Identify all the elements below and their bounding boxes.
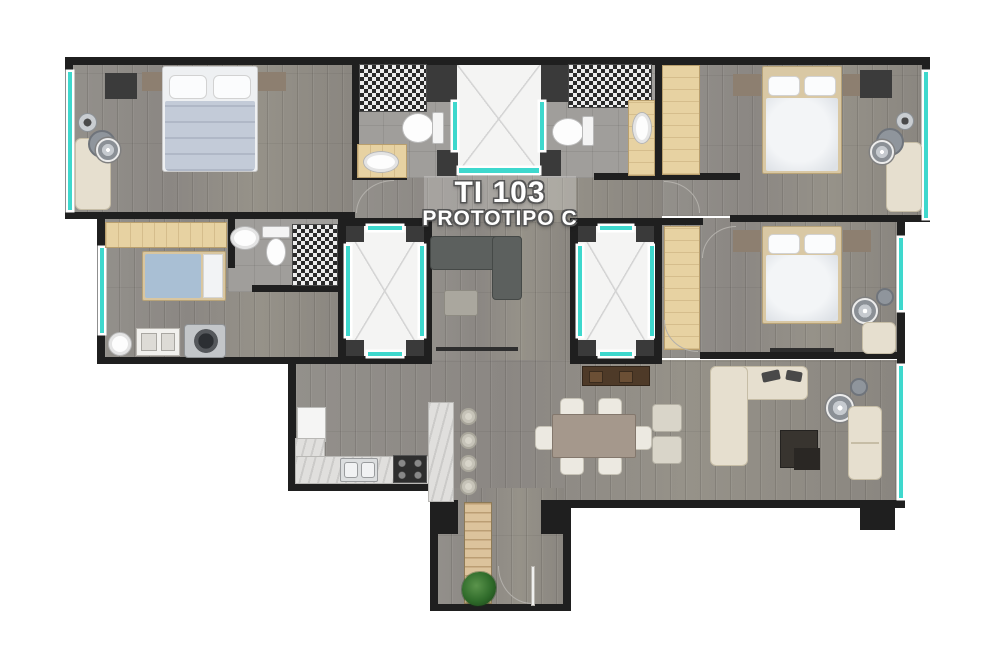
shower-mosaic bbox=[359, 64, 427, 112]
toilet-tank bbox=[432, 112, 444, 144]
double-bed bbox=[162, 66, 258, 172]
prototype-subtitle: PROTOTIPO C bbox=[400, 207, 600, 231]
floor-lamp-icon bbox=[96, 138, 120, 162]
washer-lid bbox=[194, 329, 218, 353]
pillow bbox=[768, 76, 800, 96]
toilet-icon bbox=[552, 118, 584, 146]
window-small-bedroom bbox=[100, 248, 104, 333]
toilet-tank bbox=[582, 116, 594, 146]
window-living bbox=[899, 366, 903, 498]
headboard-panel bbox=[733, 230, 761, 252]
sink-bowl bbox=[161, 333, 175, 351]
tv-console bbox=[436, 347, 518, 351]
patio-2-window bbox=[578, 246, 582, 336]
dining-chair bbox=[560, 455, 584, 475]
window-master-right bbox=[924, 72, 928, 218]
patio-1-window bbox=[346, 246, 350, 336]
sink-icon bbox=[632, 112, 652, 144]
pouf bbox=[652, 404, 682, 432]
armchair bbox=[862, 322, 896, 354]
wardrobe bbox=[105, 222, 227, 248]
tv-console bbox=[770, 348, 834, 352]
patio-2-corner bbox=[636, 226, 654, 242]
sink-icon bbox=[363, 151, 399, 173]
window-bedroom2 bbox=[899, 238, 903, 310]
wall-kitchen-bottom bbox=[288, 483, 438, 491]
coffee-table-tier bbox=[794, 448, 820, 470]
plant-pot-icon bbox=[896, 112, 914, 130]
pillow bbox=[804, 76, 836, 96]
wall-bath3-bottom bbox=[252, 285, 342, 292]
headboard-panel bbox=[256, 72, 286, 91]
patio-2-corner bbox=[636, 340, 654, 356]
shaft-corner-block bbox=[427, 64, 457, 102]
pillow bbox=[804, 234, 836, 254]
entry-door-leaf bbox=[531, 566, 535, 606]
shaft-corner-block bbox=[540, 150, 561, 176]
headboard-panel bbox=[843, 230, 871, 252]
nightstand bbox=[860, 70, 892, 98]
sectional-sofa-chaise bbox=[492, 236, 522, 300]
wall-bottom-right bbox=[563, 500, 905, 508]
column-stub-left bbox=[430, 500, 458, 534]
patio-2 bbox=[578, 226, 654, 356]
wall-bath2-right bbox=[655, 57, 662, 180]
dining-chair bbox=[598, 455, 622, 475]
patio-1-corner bbox=[406, 340, 424, 356]
bar-stool bbox=[460, 478, 477, 495]
utility-sink bbox=[136, 328, 180, 356]
floor-plan: TI 103 PROTOTIPO C bbox=[0, 0, 1000, 667]
shaft-corner-block bbox=[437, 150, 458, 176]
bar-stool bbox=[460, 408, 477, 425]
drawer bbox=[589, 371, 603, 383]
wall-top bbox=[65, 57, 930, 65]
pillow bbox=[768, 234, 800, 254]
stove-icon bbox=[393, 455, 427, 483]
wall-bedroom2-top bbox=[648, 218, 703, 225]
drawer bbox=[619, 371, 633, 383]
plant-pot-icon bbox=[78, 113, 97, 132]
shaft-window bbox=[459, 168, 539, 173]
double-bed bbox=[762, 226, 842, 324]
round-side-table bbox=[876, 288, 894, 306]
cushion-divider bbox=[851, 442, 879, 444]
outside-mask bbox=[292, 491, 430, 505]
bar-stool bbox=[460, 455, 477, 472]
patio-1-corner bbox=[346, 340, 364, 356]
loveseat bbox=[848, 406, 882, 480]
laundry-basin-icon bbox=[108, 332, 132, 356]
dining-table bbox=[552, 414, 636, 458]
patio-2-window bbox=[600, 352, 632, 356]
duvet bbox=[165, 101, 255, 171]
tv-panel bbox=[105, 73, 137, 99]
l-sofa-chaise bbox=[710, 366, 748, 466]
pillow bbox=[169, 75, 207, 99]
patio-1-window bbox=[420, 246, 424, 336]
window-master-left bbox=[68, 72, 72, 210]
single-bed bbox=[142, 251, 226, 301]
patio-2-window bbox=[650, 246, 654, 336]
ottoman bbox=[444, 290, 478, 316]
pillow bbox=[213, 75, 251, 99]
column-bottom-right bbox=[860, 500, 895, 530]
sink-icon bbox=[230, 226, 260, 250]
kitchen-island bbox=[428, 402, 454, 502]
headboard-panel bbox=[733, 74, 761, 96]
shower-mosaic bbox=[292, 224, 338, 286]
washing-machine-icon bbox=[184, 324, 226, 358]
double-bed bbox=[762, 66, 842, 174]
shaft-window bbox=[540, 102, 544, 150]
floor-lamp-icon bbox=[852, 298, 878, 324]
shaft-corner-block bbox=[541, 64, 571, 102]
wall-stub-bottom bbox=[430, 604, 571, 611]
kitchen-sink-icon bbox=[340, 458, 378, 482]
wall-bedroom2-left bbox=[655, 218, 662, 358]
round-side-table bbox=[850, 378, 868, 396]
light-shaft bbox=[457, 64, 541, 174]
wall-bedroom1-bottom bbox=[97, 212, 355, 219]
shaft-window bbox=[453, 102, 457, 150]
sideboard bbox=[582, 366, 650, 386]
patio-1 bbox=[346, 226, 424, 356]
patio-2-corner bbox=[578, 340, 596, 356]
duvet bbox=[766, 255, 838, 321]
toilet-icon bbox=[266, 238, 286, 266]
patio-2-window bbox=[600, 226, 632, 230]
fridge-icon bbox=[297, 407, 326, 442]
duvet bbox=[145, 254, 201, 298]
patio-1-window bbox=[368, 352, 402, 356]
patio-1-window bbox=[368, 226, 402, 230]
sink-bowl bbox=[344, 462, 358, 478]
mattress bbox=[203, 254, 223, 298]
sink-bowl bbox=[141, 333, 157, 351]
wardrobe bbox=[662, 65, 700, 175]
wall-midleft-bottom bbox=[97, 357, 345, 364]
patio-1-corner bbox=[346, 226, 364, 242]
duvet bbox=[766, 98, 838, 171]
toilet-tank bbox=[262, 226, 290, 238]
wall-bedroom-tr-bottom bbox=[730, 215, 905, 222]
bar-stool bbox=[460, 432, 477, 449]
pouf bbox=[652, 436, 682, 464]
column-stub-right bbox=[541, 500, 571, 534]
floor-lamp-icon bbox=[870, 140, 894, 164]
toilet-icon bbox=[402, 113, 434, 143]
sink-bowl bbox=[361, 462, 375, 478]
unit-title: TI 103 bbox=[415, 176, 585, 210]
